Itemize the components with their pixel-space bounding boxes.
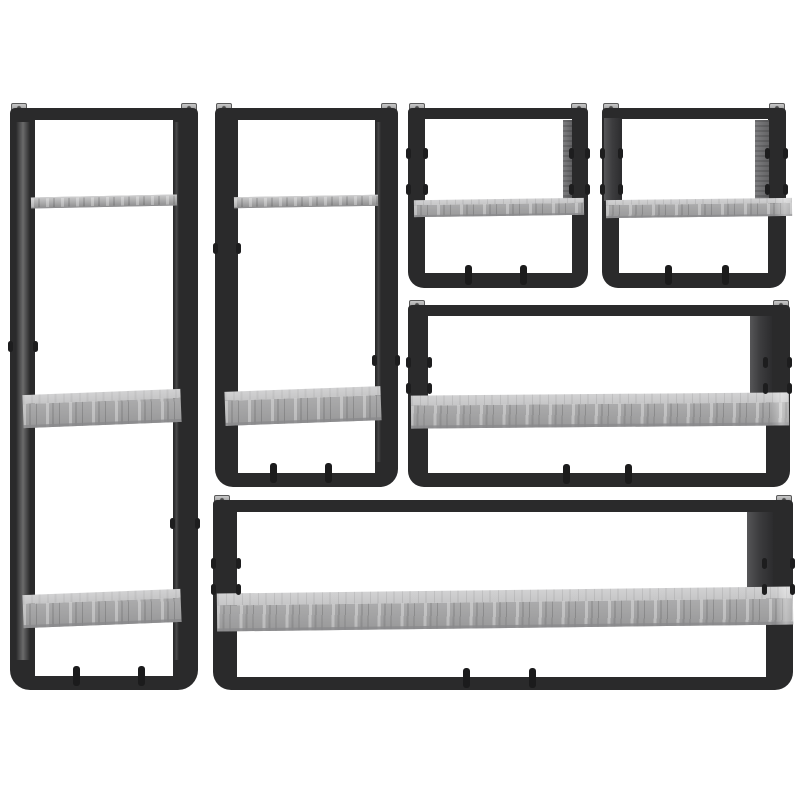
connector-bump (762, 558, 767, 569)
connector-bump (211, 584, 216, 595)
connector-bump (236, 584, 241, 595)
rail-screw (138, 666, 145, 686)
shelf-unit-long-bottom (213, 500, 793, 690)
rail-screw (325, 463, 332, 483)
rail-screw (270, 463, 277, 483)
connector-bump (569, 148, 574, 159)
connector-bump (763, 383, 768, 394)
connector-bump (423, 148, 428, 159)
shelf-board (411, 392, 789, 428)
frame-highlight (16, 122, 30, 660)
connector-bump (762, 584, 767, 595)
connector-bump (783, 148, 788, 159)
connector-bump (406, 184, 411, 195)
connector-bump (585, 184, 590, 195)
rail-screw (563, 464, 570, 484)
connector-bump (427, 357, 432, 368)
shelf-unit-wide-middle (408, 305, 790, 487)
connector-bump (406, 148, 411, 159)
connector-bump (783, 184, 788, 195)
connector-bump (600, 148, 605, 159)
shelf-unit-small-square-1 (408, 108, 588, 288)
shelf-unit-tall-left (10, 108, 198, 690)
shelf-board (606, 198, 792, 218)
shelf-board (414, 198, 584, 217)
connector-bump (618, 148, 623, 159)
connector-bump (170, 518, 175, 529)
shelf-unit-small-square-2 (602, 108, 786, 288)
connector-bump (195, 518, 200, 529)
shelf-board (224, 386, 381, 426)
connector-bump (406, 383, 411, 394)
shelf-unit-medium-left (215, 108, 398, 487)
connector-bump (395, 355, 400, 366)
connector-bump (423, 184, 428, 195)
connector-bump (236, 558, 241, 569)
shelf-board (217, 586, 793, 631)
connector-bump (765, 148, 770, 159)
side-panel (750, 316, 772, 400)
shelf-board (22, 589, 181, 628)
side-panel (747, 512, 773, 592)
connector-bump (790, 558, 795, 569)
product-image-canvas (0, 0, 800, 800)
connector-bump (211, 558, 216, 569)
connector-bump (236, 243, 241, 254)
connector-bump (765, 184, 770, 195)
rail-screw (529, 668, 536, 688)
rail-screw (73, 666, 80, 686)
connector-bump (600, 184, 605, 195)
rail-screw (722, 265, 729, 285)
connector-bump (585, 148, 590, 159)
connector-bump (427, 383, 432, 394)
connector-bump (787, 383, 792, 394)
connector-bump (618, 184, 623, 195)
rail-screw (665, 265, 672, 285)
shelf-frame (215, 108, 398, 487)
connector-bump (406, 357, 411, 368)
rail-screw (625, 464, 632, 484)
connector-bump (569, 184, 574, 195)
connector-bump (372, 355, 377, 366)
rail-screw (463, 668, 470, 688)
connector-bump (33, 341, 38, 352)
rail-screw (465, 265, 472, 285)
connector-bump (787, 357, 792, 368)
shelf-board (22, 389, 181, 428)
connector-bump (790, 584, 795, 595)
connector-bump (8, 341, 13, 352)
connector-bump (763, 357, 768, 368)
connector-bump (213, 243, 218, 254)
rail-screw (520, 265, 527, 285)
